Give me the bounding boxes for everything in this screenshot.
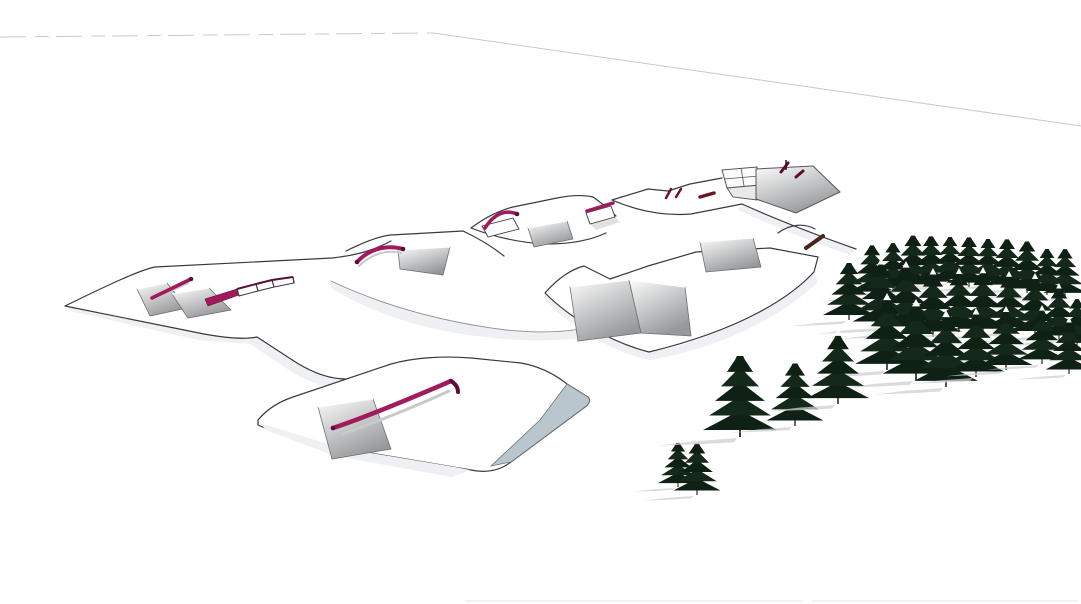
pine-tree-snow-tip	[1024, 236, 1030, 241]
edge-t4-front	[612, 200, 742, 214]
panel-crm-a	[570, 280, 641, 341]
tree-shadow	[632, 488, 675, 492]
pine-tree-snow-tip	[890, 238, 895, 243]
funbox-slope-face	[756, 166, 840, 213]
pine-tree-snow-tip	[986, 234, 991, 239]
pine-tree-snow-tip	[1074, 294, 1079, 299]
pine-tree-snow-tip	[948, 232, 953, 237]
tree-shadow	[644, 496, 694, 501]
rail-straight-left-end-cap	[189, 277, 194, 282]
pine-tree-snow-tip	[676, 438, 681, 443]
shade-mound1-front	[65, 306, 346, 388]
tree-shadow	[790, 321, 846, 326]
horizon-line-right	[433, 33, 1081, 126]
rail-rainbow-end-cap	[401, 247, 406, 252]
pine-tree-snow-tip	[869, 240, 875, 245]
tree-shadow	[1016, 375, 1066, 380]
pine-tree-snow-tip	[966, 232, 971, 237]
pine-tree-snow-tip	[1062, 244, 1067, 249]
pine-tree-snow-tip	[928, 231, 933, 236]
pine-tree-snow-tip	[736, 348, 745, 356]
pit-terrace2	[398, 247, 450, 275]
panel-crm-top	[700, 238, 761, 272]
pine-tree-snow-tip	[910, 230, 916, 236]
rail-rainbow-end-cap	[355, 260, 360, 265]
pine-tree-snow-tip	[792, 357, 799, 363]
rail-rainbow	[357, 247, 403, 262]
small-jib-mark	[676, 189, 681, 197]
horizon-line-left	[0, 33, 433, 37]
scene-canvas	[0, 0, 1081, 604]
tree-shadow	[816, 328, 878, 334]
rail-plateau-long-end-cap	[331, 426, 336, 431]
pine-tree-snow-tip	[1004, 234, 1009, 239]
render-viewport	[0, 0, 1081, 604]
small-jib-mark	[700, 193, 714, 197]
tree-shadow	[874, 388, 943, 395]
funbox-front-face	[727, 185, 760, 200]
jib-box-1	[482, 218, 519, 237]
pine-tree-snow-tip	[846, 257, 852, 263]
rail-box-1-end-cap	[515, 212, 520, 217]
pine-tree-snow-tip	[1045, 244, 1050, 249]
